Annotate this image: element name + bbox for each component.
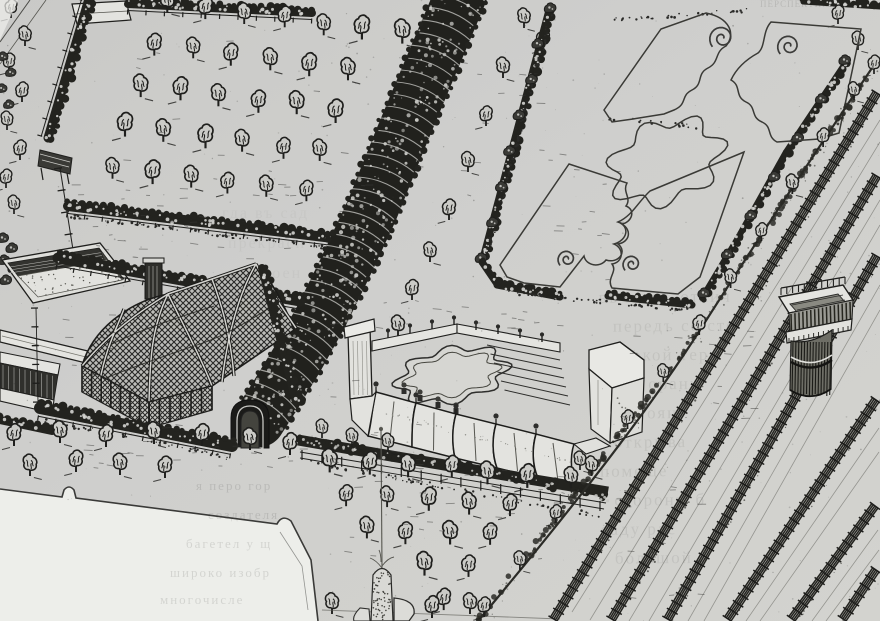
svg-text:гда въ сад: гда въ сад <box>222 205 309 222</box>
svg-text:многочисле: многочисле <box>160 592 244 607</box>
svg-text:я перо гор: я перо гор <box>196 478 272 493</box>
svg-text:создателя: создателя <box>208 507 279 522</box>
svg-text:помеще: помеще <box>600 461 668 481</box>
svg-text:большой: большой <box>615 548 693 568</box>
svg-text:передъ со сто: передъ со сто <box>613 316 737 336</box>
svg-text:багетел у щ: багетел у щ <box>186 536 272 551</box>
svg-text:широко изобр: широко изобр <box>170 565 271 580</box>
